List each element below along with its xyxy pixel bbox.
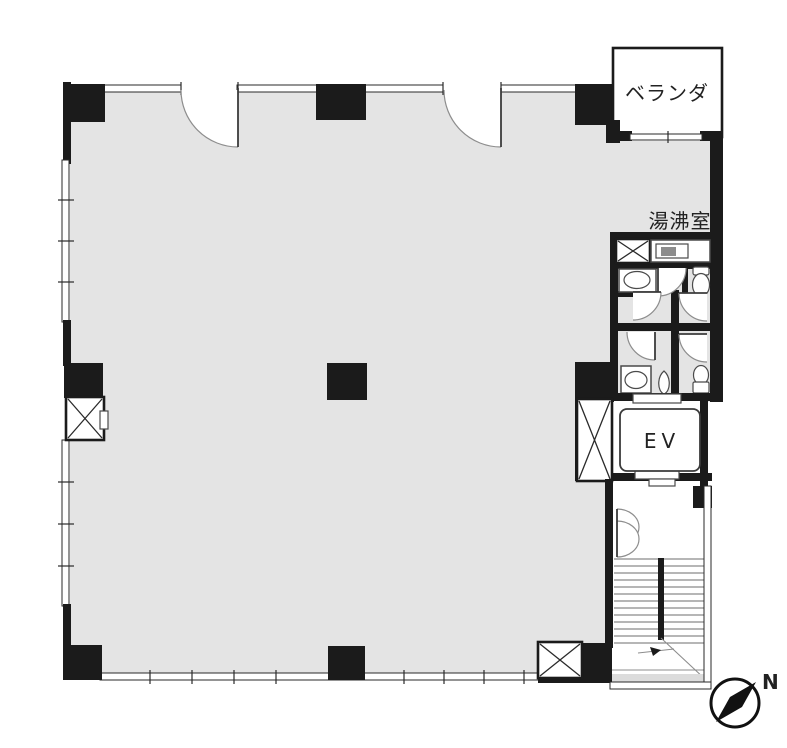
window-stair-right xyxy=(704,486,711,688)
stair-landing xyxy=(612,674,706,682)
column xyxy=(575,84,612,125)
kitchen-faucet xyxy=(661,247,676,256)
floor-plan: ベランダ 湯沸室 xyxy=(0,0,787,748)
shaft-kitchen xyxy=(616,239,650,263)
compass-north-label: N xyxy=(762,670,779,694)
elevator-sill xyxy=(649,479,675,486)
column xyxy=(316,84,366,120)
elevator-label: EV xyxy=(644,429,680,453)
toilet-base xyxy=(693,382,709,393)
veranda: ベランダ xyxy=(606,48,723,143)
basin xyxy=(625,372,647,389)
wall-segment xyxy=(580,643,612,681)
wc-upper xyxy=(619,267,710,297)
window-top-1 xyxy=(103,85,181,92)
window-top-2 xyxy=(237,85,317,92)
window-bottom xyxy=(100,673,540,680)
window-left-2 xyxy=(62,440,69,606)
column xyxy=(64,84,105,122)
wash-basin xyxy=(624,272,650,289)
elevator-shaft-duct xyxy=(577,399,612,481)
veranda-label: ベランダ xyxy=(625,81,709,105)
column xyxy=(327,363,367,400)
floor-plan-drawing: ベランダ 湯沸室 xyxy=(0,0,787,748)
shaft-bottom xyxy=(538,642,582,678)
window-stair-bottom xyxy=(610,682,711,689)
column xyxy=(64,363,103,398)
compass: N xyxy=(711,670,779,727)
shaft-left xyxy=(66,397,108,440)
kitchenette xyxy=(616,239,710,263)
column xyxy=(328,646,365,680)
window-top-4 xyxy=(501,85,577,92)
stair-divider xyxy=(658,558,664,640)
window-top-3 xyxy=(365,85,443,92)
hot-water-room-label: 湯沸室 xyxy=(649,209,712,233)
column xyxy=(63,645,102,680)
elevator-door-top xyxy=(633,394,681,403)
